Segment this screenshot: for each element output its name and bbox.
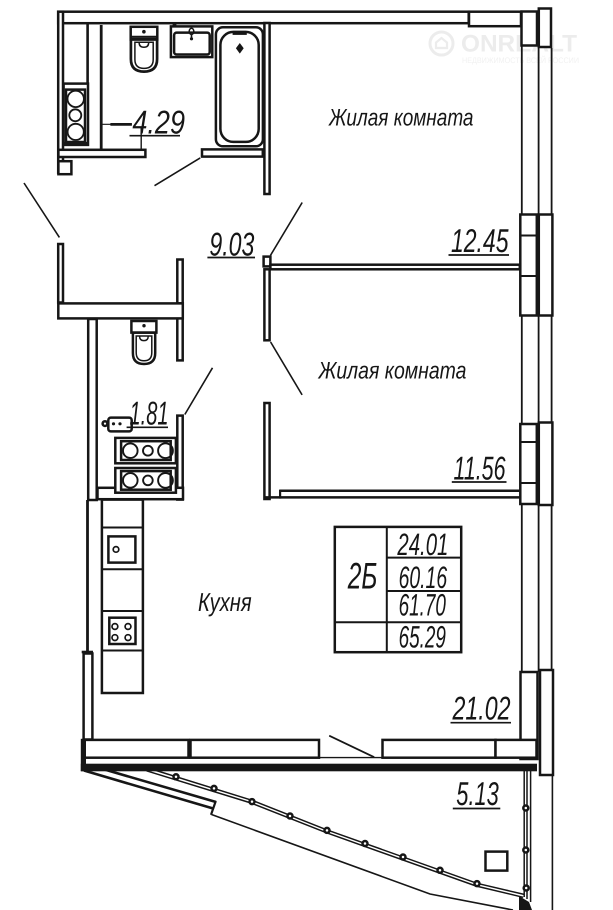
svg-text:НЕДВИЖИМОСТЬ ВСЕЙ РОССИИ: НЕДВИЖИМОСТЬ ВСЕЙ РОССИИ <box>462 55 579 65</box>
svg-text:61.70: 61.70 <box>399 588 446 623</box>
svg-text:Кухня: Кухня <box>198 587 252 617</box>
svg-text:24.01: 24.01 <box>397 527 449 562</box>
svg-text:12.45: 12.45 <box>451 222 509 259</box>
svg-text:Жилая комната: Жилая комната <box>318 357 467 384</box>
svg-text:2Б: 2Б <box>347 555 377 596</box>
svg-text:65.29: 65.29 <box>399 619 446 654</box>
svg-text:ONREALT: ONREALT <box>461 31 577 58</box>
svg-text:Жилая комната: Жилая комната <box>328 104 473 131</box>
svg-text:5.13: 5.13 <box>456 775 499 812</box>
svg-text:21.02: 21.02 <box>452 690 511 727</box>
svg-text:11.56: 11.56 <box>454 449 506 486</box>
svg-text:1.81: 1.81 <box>130 395 169 432</box>
svg-text:4.29: 4.29 <box>132 103 185 140</box>
